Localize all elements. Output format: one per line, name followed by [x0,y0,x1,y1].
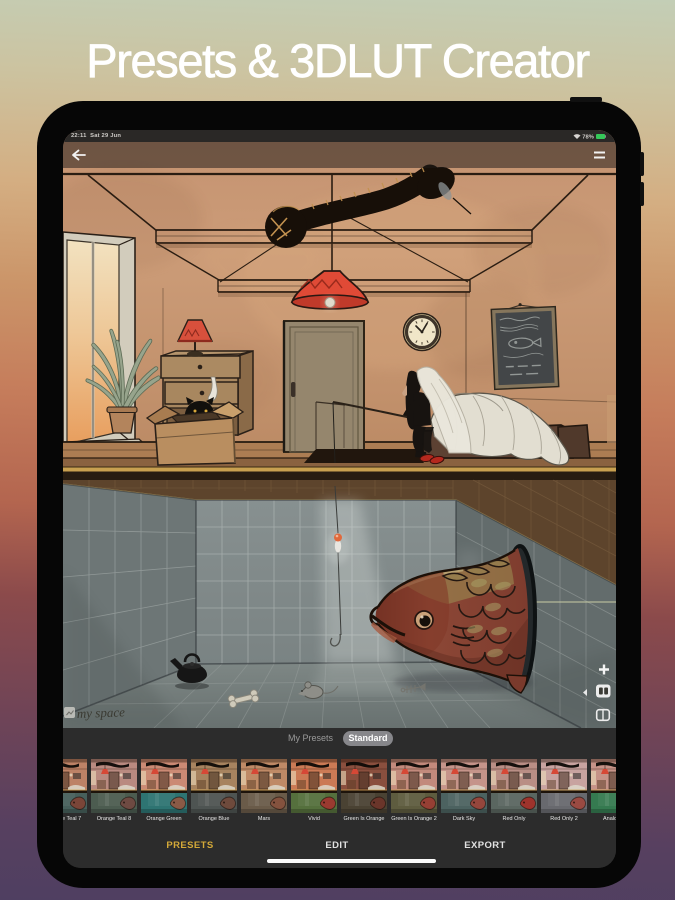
svg-text:my space: my space [77,704,126,721]
